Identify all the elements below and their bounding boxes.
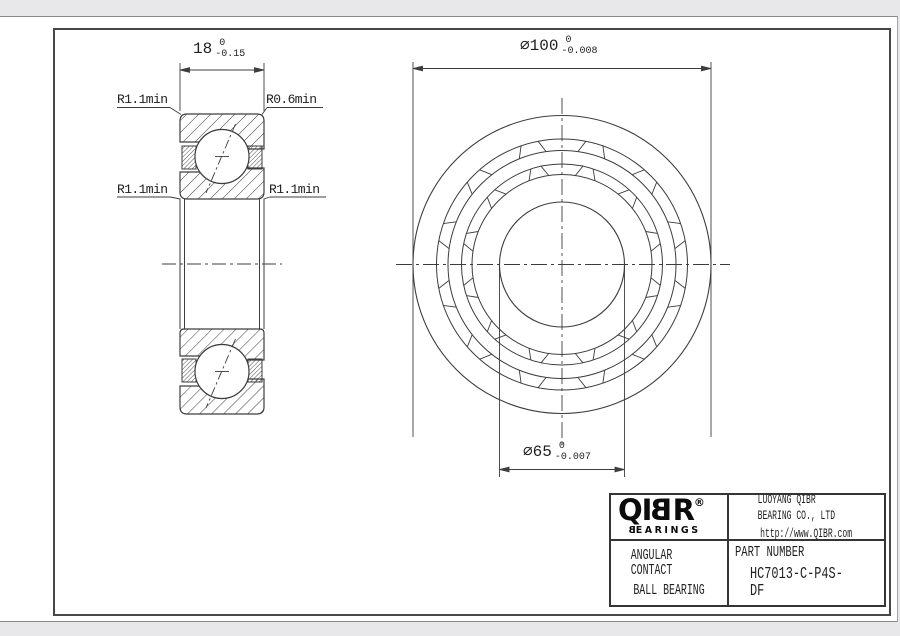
dim-width-value: 18 [193,41,212,57]
radius-label-top-right: R0.6min [266,93,316,106]
brand-tagline: BEARINGS [626,526,701,536]
registered-trademark-symbol: ® [694,496,705,509]
dim-outer-diameter: ⌀100 0 -0.008 [520,38,597,57]
part-number-value: HC7013-C-P4S-DF [750,566,884,600]
dim-section-width: 18 0 -0.15 [193,41,245,60]
dim-bore-diameter: ⌀65 0 -0.007 [523,444,591,463]
radius-label-top-left: R1.1min [117,93,167,106]
dim-bore-tolerance: 0 -0.007 [555,441,591,463]
company-cell: LUOYANG QIBR BEARING CO., LTD http://www… [728,495,884,539]
part-number-label: PART NUMBER [735,545,834,560]
cage-section-right-bottom [248,359,262,382]
radius-label-mid-right: R1.1min [269,183,319,196]
bearing-section-view [162,114,282,414]
product-type-cell: ANGULAR CONTACT BALL BEARING [611,540,727,605]
brand-logo: QIBR® [618,496,705,525]
part-number-cell: PART NUMBER HC7013-C-P4S-DF [728,540,884,605]
cage-section-left [182,146,196,169]
drawing-page: 18 0 -0.15 ⌀100 0 -0.008 ⌀65 0 -0.007 R1… [0,0,900,636]
bearing-front-view [396,98,730,449]
product-type-line2: BALL BEARING [615,583,723,598]
mirrored-b: B [626,526,636,536]
mirrored-b: B [651,496,672,525]
diameter-symbol: ⌀ [520,37,530,55]
dim-width-lines [180,63,264,111]
dim-od-value: ⌀100 [520,38,558,54]
dim-width-tolerance: 0 -0.15 [215,38,245,60]
title-block: QIBR® BEARINGS LUOYANG QIBR BEARING CO.,… [609,493,886,607]
logo-cell: QIBR® BEARINGS [611,495,727,539]
dim-od-tolerance: 0 -0.008 [561,35,597,57]
dim-bore-value: ⌀65 [523,444,552,460]
cage-section-right [248,146,262,169]
product-type-line1: ANGULAR CONTACT [611,548,727,578]
company-name: LUOYANG QIBR BEARING CO., LTD [728,492,884,525]
diameter-symbol: ⌀ [523,443,533,461]
cage-section-left-bottom [182,359,196,382]
radius-label-mid-left: R1.1min [117,183,167,196]
